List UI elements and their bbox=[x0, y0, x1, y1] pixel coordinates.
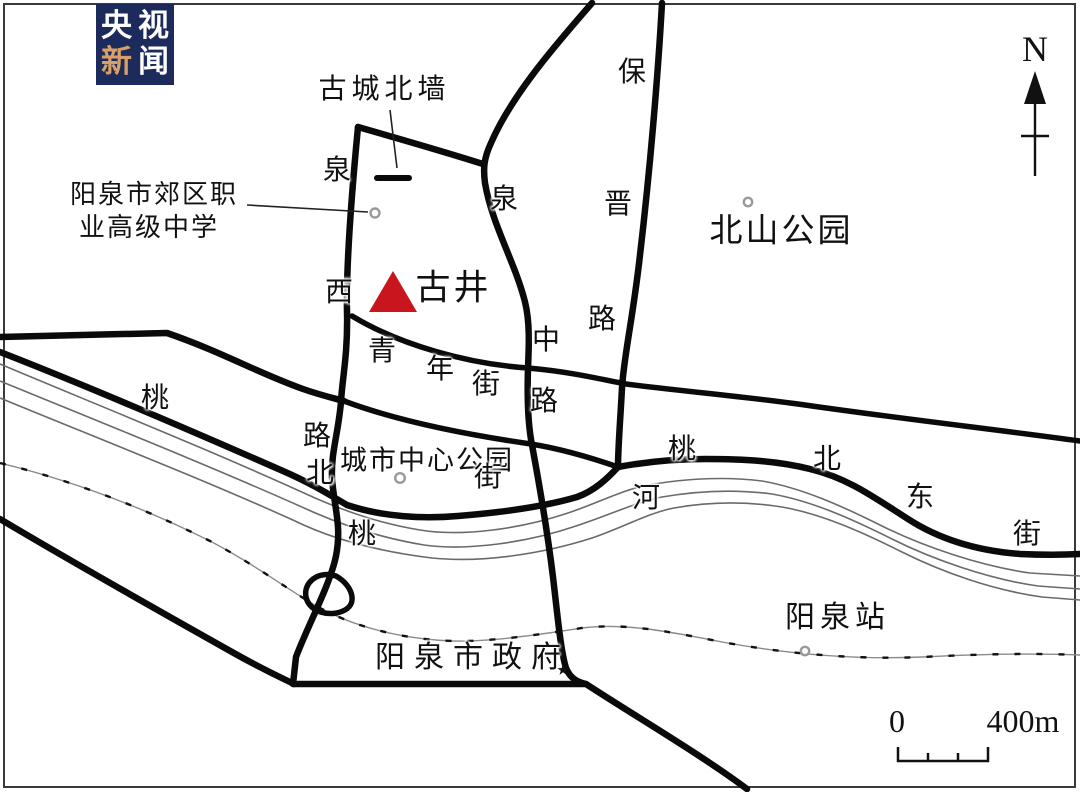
map-label: 泉 bbox=[323, 157, 351, 185]
map-label: 街 bbox=[472, 371, 500, 399]
map-label: 河 bbox=[632, 485, 660, 513]
map-label: 古井 bbox=[412, 271, 491, 306]
logo-char: 视 bbox=[138, 10, 169, 41]
logo-char: 新 bbox=[101, 46, 132, 77]
map-label: 北山公园 bbox=[707, 216, 854, 249]
map-label: 西 bbox=[325, 279, 353, 307]
map-screenshot: 古城北墙阳泉市郊区职业高级中学泉西路泉中路保晋路北山公园古井青年街城市中心公园街… bbox=[0, 0, 1080, 792]
map-label: N bbox=[1022, 31, 1048, 67]
logo-char: 央 bbox=[101, 10, 132, 41]
map-label: 泉 bbox=[490, 186, 518, 214]
map-label: 桃 bbox=[141, 385, 169, 413]
map-label: 北 bbox=[306, 460, 334, 488]
map-label: 阳泉市政府 bbox=[366, 643, 570, 673]
map-label: 街 bbox=[1013, 521, 1041, 549]
logo-char: 闻 bbox=[138, 46, 169, 77]
map-label: 桃 bbox=[348, 521, 376, 549]
map-label: 路 bbox=[588, 306, 616, 334]
map-label: 青 bbox=[368, 338, 396, 366]
map-label: 0 bbox=[889, 705, 905, 737]
map-label: 北 bbox=[813, 446, 841, 474]
map-label: 路 bbox=[303, 423, 331, 451]
map-label: 晋 bbox=[604, 191, 632, 219]
cctv-news-logo: 央 视 新 闻 bbox=[96, 4, 174, 85]
map-label: 阳泉市郊区职 bbox=[68, 182, 238, 208]
map-label: 400m bbox=[987, 705, 1060, 737]
map-label: 阳泉站 bbox=[780, 603, 890, 633]
map-label: 古城北墙 bbox=[313, 76, 450, 104]
map-label: 路 bbox=[530, 388, 558, 416]
map-label: 业高级中学 bbox=[77, 215, 219, 241]
map-labels: 古城北墙阳泉市郊区职业高级中学泉西路泉中路保晋路北山公园古井青年街城市中心公园街… bbox=[0, 0, 1080, 792]
map-label: 中 bbox=[532, 327, 560, 355]
map-label: 街 bbox=[474, 464, 502, 492]
map-label: 保 bbox=[618, 59, 646, 87]
map-label: 东 bbox=[906, 484, 934, 512]
map-label: 桃 bbox=[668, 436, 696, 464]
map-label: 年 bbox=[426, 356, 454, 384]
